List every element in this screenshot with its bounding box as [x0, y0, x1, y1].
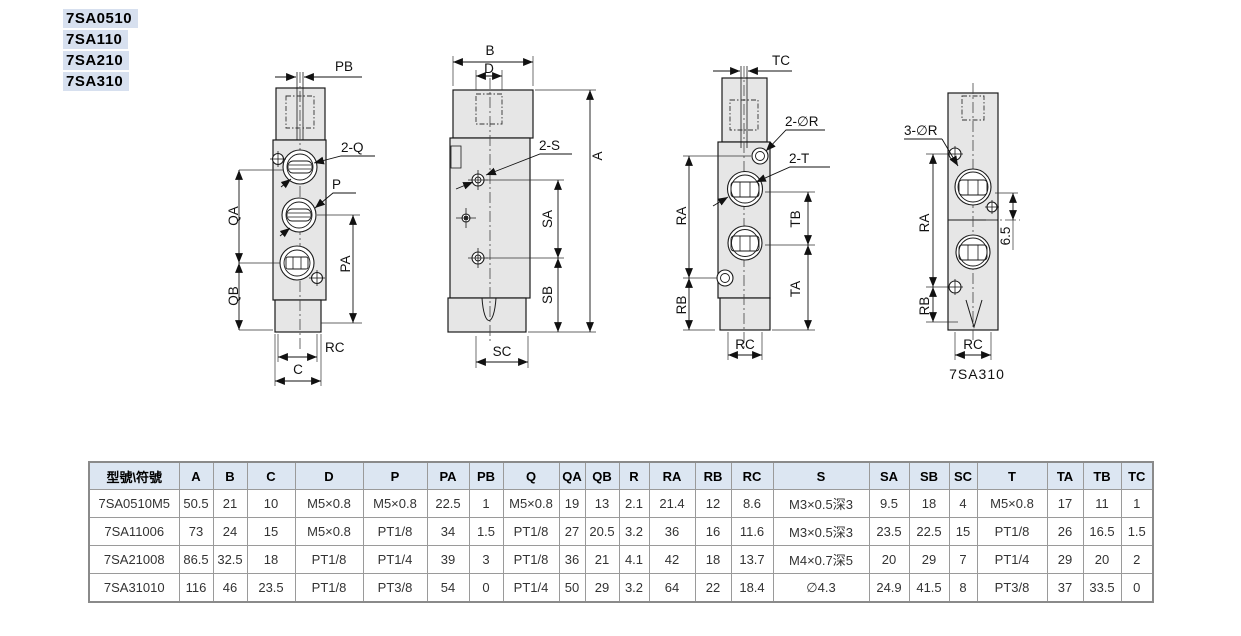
- value-cell: 18.4: [731, 574, 773, 603]
- value-cell: 9.5: [869, 490, 909, 518]
- value-cell: 13.7: [731, 546, 773, 574]
- column-header: A: [179, 462, 213, 490]
- value-cell: 36: [559, 546, 585, 574]
- port-t-top: [728, 172, 763, 207]
- value-cell: 21: [213, 490, 247, 518]
- value-cell: 16.5: [1083, 518, 1121, 546]
- dim-label-rc: RC: [325, 340, 345, 355]
- value-cell: 18: [247, 546, 295, 574]
- dim-label-ra: RA: [917, 214, 932, 233]
- value-cell: 20: [869, 546, 909, 574]
- model-list-item: 7SA210: [63, 51, 129, 70]
- value-cell: 19: [559, 490, 585, 518]
- value-cell: 29: [1047, 546, 1083, 574]
- dim-label-d: D: [484, 61, 494, 76]
- value-cell: 11: [1083, 490, 1121, 518]
- value-cell: 22.5: [909, 518, 949, 546]
- column-header: SB: [909, 462, 949, 490]
- value-cell: 13: [585, 490, 619, 518]
- column-header: Q: [503, 462, 559, 490]
- dim-label-sa: SA: [540, 210, 555, 228]
- dim-label-tc: TC: [772, 53, 790, 68]
- port-bottom: [956, 235, 990, 269]
- model-cell: 7SA0510M5: [89, 490, 179, 518]
- value-cell: M3×0.5深3: [773, 490, 869, 518]
- dim-label-3r: 3-∅R: [904, 123, 938, 138]
- column-header: SC: [949, 462, 977, 490]
- dim-label-2s: 2-S: [539, 138, 560, 153]
- value-cell: 23.5: [869, 518, 909, 546]
- column-header: 型號\符號: [89, 462, 179, 490]
- column-header: PB: [469, 462, 503, 490]
- value-cell: 0: [1121, 574, 1153, 603]
- r-hole-top: [752, 148, 768, 164]
- dim-label-ra: RA: [674, 207, 689, 226]
- table-row: 7SA11006732415M5×0.8PT1/8341.5PT1/82720.…: [89, 518, 1153, 546]
- valve-body-top: [722, 78, 767, 142]
- value-cell: 3.2: [619, 518, 649, 546]
- dim-label-2r: 2-∅R: [785, 114, 819, 129]
- column-header: QB: [585, 462, 619, 490]
- dim-label-b: B: [485, 43, 494, 58]
- table-row: 7SA2100886.532.518PT1/8PT1/4393PT1/83621…: [89, 546, 1153, 574]
- dim-label-p: P: [332, 177, 341, 192]
- port-p: [282, 198, 316, 232]
- value-cell: 1.5: [1121, 518, 1153, 546]
- model-list: 7SA0510 7SA110 7SA210 7SA310: [63, 9, 138, 93]
- value-cell: 36: [649, 518, 695, 546]
- port-t-bottom: [728, 226, 762, 260]
- value-cell: 26: [1047, 518, 1083, 546]
- dim-label-sc: SC: [493, 344, 512, 359]
- drawing-caption: 7SA310: [949, 366, 1005, 382]
- valve-body-top: [453, 90, 533, 138]
- value-cell: 73: [179, 518, 213, 546]
- column-header: QA: [559, 462, 585, 490]
- dim-label-rb: RB: [917, 297, 932, 316]
- value-cell: PT1/8: [295, 546, 363, 574]
- value-cell: 54: [427, 574, 469, 603]
- port-top: [955, 169, 991, 205]
- value-cell: M4×0.7深5: [773, 546, 869, 574]
- value-cell: M5×0.8: [503, 490, 559, 518]
- drawing-7sa310: 3-∅R RA RB 6.5 RC 7SA310: [878, 78, 1063, 388]
- dim-label-c: C: [293, 362, 303, 377]
- column-header: S: [773, 462, 869, 490]
- value-cell: PT1/8: [363, 518, 427, 546]
- value-cell: PT1/4: [363, 546, 427, 574]
- datasheet-page: 7SA0510 7SA110 7SA210 7SA310: [0, 0, 1241, 636]
- value-cell: 7: [949, 546, 977, 574]
- value-cell: 1: [469, 490, 503, 518]
- value-cell: 21: [585, 546, 619, 574]
- value-cell: 37: [1047, 574, 1083, 603]
- dim-label-6-5: 6.5: [998, 227, 1013, 246]
- dim-label-rc: RC: [963, 337, 983, 352]
- column-header: T: [977, 462, 1047, 490]
- value-cell: 11.6: [731, 518, 773, 546]
- dim-label-rb: RB: [674, 296, 689, 315]
- dim-label-sb: SB: [540, 286, 555, 304]
- drawing-side-view: B D A 2-S SA SB SC: [432, 38, 622, 378]
- value-cell: 50: [559, 574, 585, 603]
- model-cell: 7SA11006: [89, 518, 179, 546]
- column-header: TA: [1047, 462, 1083, 490]
- column-header: R: [619, 462, 649, 490]
- value-cell: 0: [469, 574, 503, 603]
- value-cell: 1.5: [469, 518, 503, 546]
- column-header: B: [213, 462, 247, 490]
- value-cell: 12: [695, 490, 731, 518]
- value-cell: 4.1: [619, 546, 649, 574]
- value-cell: 20.5: [585, 518, 619, 546]
- value-cell: 18: [695, 546, 731, 574]
- table-header-row: 型號\符號ABCDPPAPBQQAQBRRARBRCSSASBSCTTATBTC: [89, 462, 1153, 490]
- dim-label-qa: QA: [226, 206, 241, 226]
- value-cell: 22: [695, 574, 731, 603]
- value-cell: 24.9: [869, 574, 909, 603]
- value-cell: 10: [247, 490, 295, 518]
- value-cell: 23.5: [247, 574, 295, 603]
- value-cell: 46: [213, 574, 247, 603]
- dim-label-rc: RC: [735, 337, 755, 352]
- model-list-item: 7SA310: [63, 72, 129, 91]
- value-cell: 3.2: [619, 574, 649, 603]
- port-q-bottom: [280, 246, 314, 280]
- value-cell: M5×0.8: [295, 490, 363, 518]
- value-cell: PT1/4: [503, 574, 559, 603]
- value-cell: 3: [469, 546, 503, 574]
- value-cell: 29: [585, 574, 619, 603]
- value-cell: 20: [1083, 546, 1121, 574]
- dim-label-2q: 2-Q: [341, 140, 364, 155]
- dim-label-pb: PB: [335, 59, 353, 74]
- value-cell: 15: [247, 518, 295, 546]
- value-cell: PT3/8: [363, 574, 427, 603]
- value-cell: 34: [427, 518, 469, 546]
- value-cell: M5×0.8: [363, 490, 427, 518]
- model-list-item: 7SA110: [63, 30, 128, 49]
- value-cell: 24: [213, 518, 247, 546]
- column-header: RC: [731, 462, 773, 490]
- value-cell: PT1/4: [977, 546, 1047, 574]
- value-cell: 50.5: [179, 490, 213, 518]
- column-header: D: [295, 462, 363, 490]
- value-cell: 21.4: [649, 490, 695, 518]
- model-cell: 7SA21008: [89, 546, 179, 574]
- column-header: SA: [869, 462, 909, 490]
- value-cell: 18: [909, 490, 949, 518]
- dim-label-2t: 2-T: [789, 151, 809, 166]
- valve-body-bottom: [448, 298, 526, 332]
- dim-label-qb: QB: [226, 286, 241, 306]
- value-cell: 42: [649, 546, 695, 574]
- column-header: P: [363, 462, 427, 490]
- value-cell: 16: [695, 518, 731, 546]
- value-cell: M5×0.8: [295, 518, 363, 546]
- valve-body-bottom: [720, 298, 770, 330]
- value-cell: 41.5: [909, 574, 949, 603]
- model-cell: 7SA31010: [89, 574, 179, 603]
- value-cell: M5×0.8: [977, 490, 1047, 518]
- column-header: TB: [1083, 462, 1121, 490]
- column-header: RB: [695, 462, 731, 490]
- dim-label-tb: TB: [788, 210, 803, 227]
- spec-table: 型號\符號ABCDPPAPBQQAQBRRARBRCSSASBSCTTATBTC…: [88, 461, 1154, 603]
- value-cell: 86.5: [179, 546, 213, 574]
- dim-label-ta: TA: [788, 281, 803, 297]
- model-list-item: 7SA0510: [63, 9, 138, 28]
- dim-label-a: A: [590, 151, 605, 160]
- value-cell: PT1/8: [503, 546, 559, 574]
- drawing-front-view: PB 2-Q P QA QB PA RC C: [225, 52, 415, 392]
- column-header: PA: [427, 462, 469, 490]
- value-cell: 8: [949, 574, 977, 603]
- column-header: C: [247, 462, 295, 490]
- value-cell: M3×0.5深3: [773, 518, 869, 546]
- drawing-rear-view: TC 2-∅R 2-T RA RB TB TA RC: [655, 48, 855, 368]
- column-header: RA: [649, 462, 695, 490]
- port-q-top: [283, 150, 317, 184]
- column-header: TC: [1121, 462, 1153, 490]
- value-cell: 39: [427, 546, 469, 574]
- value-cell: PT1/8: [295, 574, 363, 603]
- valve-body-bottom: [275, 300, 321, 332]
- value-cell: 4: [949, 490, 977, 518]
- value-cell: PT3/8: [977, 574, 1047, 603]
- value-cell: 33.5: [1083, 574, 1121, 603]
- value-cell: 1: [1121, 490, 1153, 518]
- value-cell: 116: [179, 574, 213, 603]
- value-cell: 2: [1121, 546, 1153, 574]
- value-cell: 17: [1047, 490, 1083, 518]
- value-cell: 64: [649, 574, 695, 603]
- value-cell: 27: [559, 518, 585, 546]
- r-hole-bottom: [717, 270, 733, 286]
- table-row: 7SA0510M550.52110M5×0.8M5×0.822.51M5×0.8…: [89, 490, 1153, 518]
- value-cell: 29: [909, 546, 949, 574]
- value-cell: 8.6: [731, 490, 773, 518]
- value-cell: ∅4.3: [773, 574, 869, 603]
- value-cell: 15: [949, 518, 977, 546]
- value-cell: PT1/8: [977, 518, 1047, 546]
- dim-label-pa: PA: [338, 255, 353, 272]
- table-row: 7SA310101164623.5PT1/8PT3/8540PT1/450293…: [89, 574, 1153, 603]
- value-cell: 2.1: [619, 490, 649, 518]
- value-cell: PT1/8: [503, 518, 559, 546]
- value-cell: 32.5: [213, 546, 247, 574]
- value-cell: 22.5: [427, 490, 469, 518]
